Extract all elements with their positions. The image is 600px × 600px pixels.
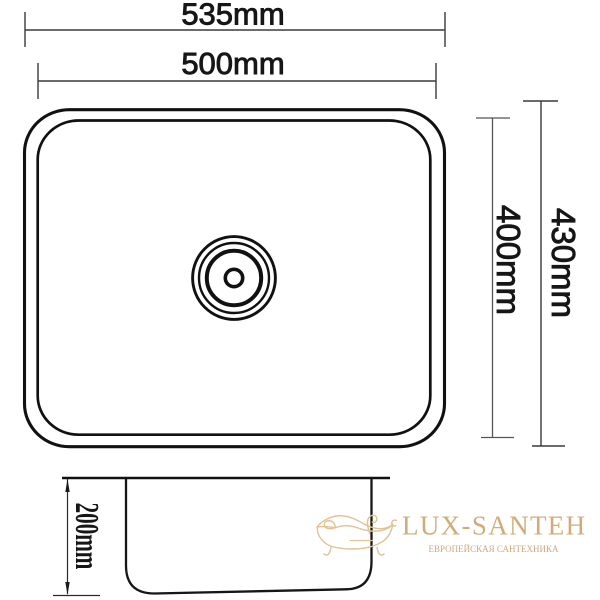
svg-text:ЕВРОПЕЙСКАЯ САНТЕХНИКА: ЕВРОПЕЙСКАЯ САНТЕХНИКА [429, 544, 559, 554]
svg-text:430mm: 430mm [545, 208, 582, 318]
svg-text:200mm: 200mm [68, 503, 105, 570]
svg-text:400mm: 400mm [490, 205, 527, 315]
svg-text:LUX-SANTEH: LUX-SANTEH [402, 511, 586, 541]
svg-text:500mm: 500mm [181, 46, 284, 81]
svg-text:535mm: 535mm [181, 0, 284, 32]
